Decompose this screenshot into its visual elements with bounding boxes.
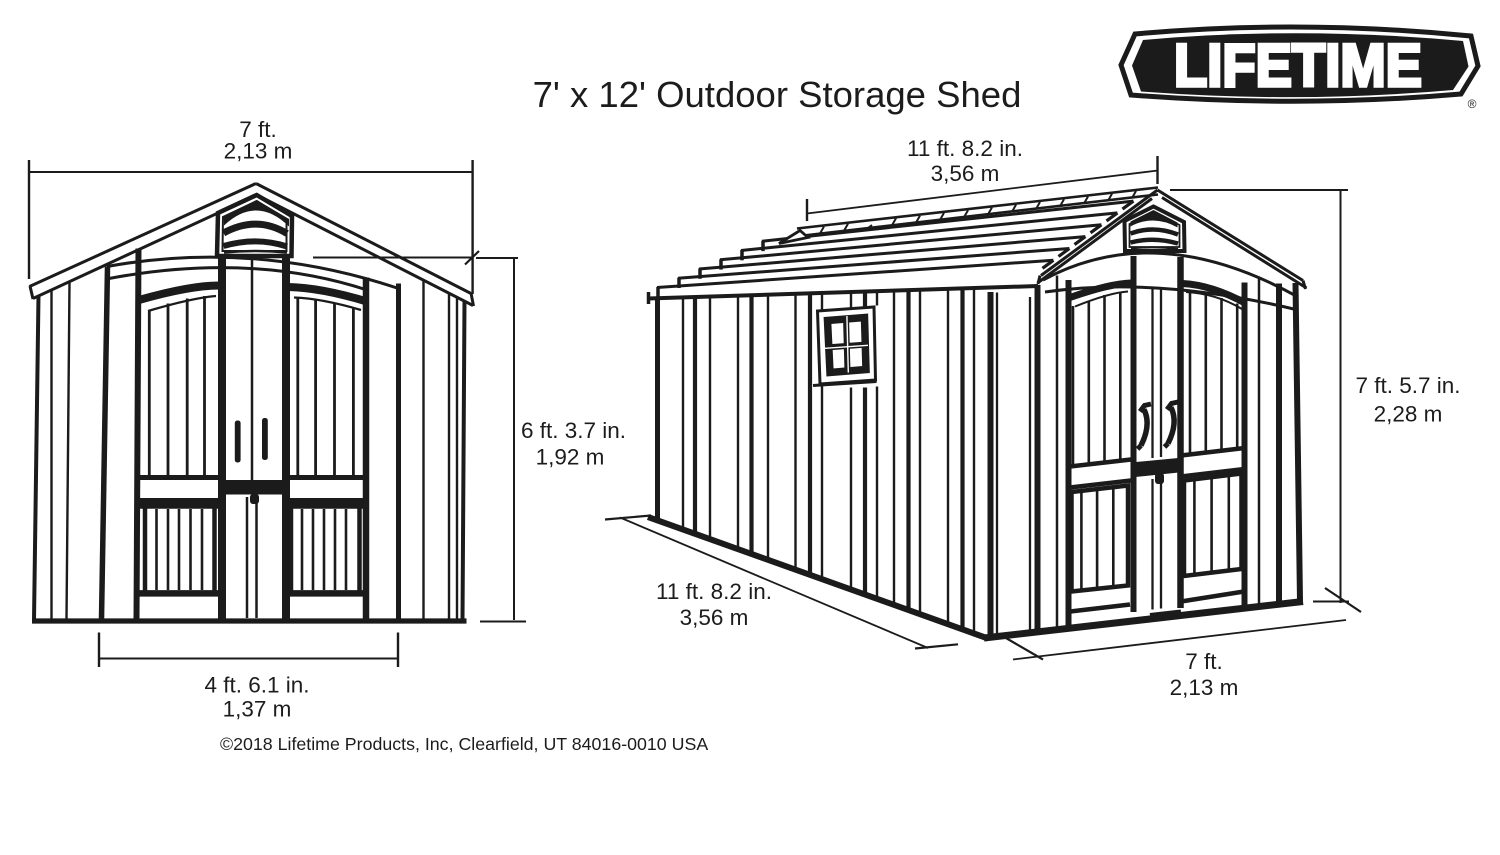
- svg-text:7 ft.: 7 ft.: [1185, 649, 1223, 674]
- svg-text:©2018 Lifetime Products, Inc,: ©2018 Lifetime Products, Inc, Clearfield…: [220, 734, 708, 754]
- svg-text:11 ft. 8.2 in.: 11 ft. 8.2 in.: [907, 136, 1023, 161]
- svg-text:7 ft. 5.7 in.: 7 ft. 5.7 in.: [1355, 373, 1460, 398]
- svg-text:1,92 m: 1,92 m: [536, 445, 605, 470]
- svg-text:2,13 m: 2,13 m: [1170, 675, 1239, 700]
- svg-text:2,13 m: 2,13 m: [224, 139, 293, 164]
- svg-text:LIFETIME: LIFETIME: [1174, 32, 1422, 99]
- svg-text:1,37 m: 1,37 m: [223, 697, 292, 722]
- svg-text:2,28 m: 2,28 m: [1374, 402, 1443, 427]
- svg-text:4 ft. 6.1 in.: 4 ft. 6.1 in.: [204, 673, 309, 698]
- svg-text:3,56 m: 3,56 m: [680, 605, 749, 630]
- svg-text:®: ®: [1468, 97, 1477, 111]
- svg-text:7' x 12' Outdoor Storage Shed: 7' x 12' Outdoor Storage Shed: [533, 74, 1022, 115]
- svg-text:3,56 m: 3,56 m: [931, 161, 1000, 186]
- svg-text:6 ft. 3.7 in.: 6 ft. 3.7 in.: [521, 418, 626, 443]
- svg-text:11 ft. 8.2 in.: 11 ft. 8.2 in.: [656, 579, 772, 604]
